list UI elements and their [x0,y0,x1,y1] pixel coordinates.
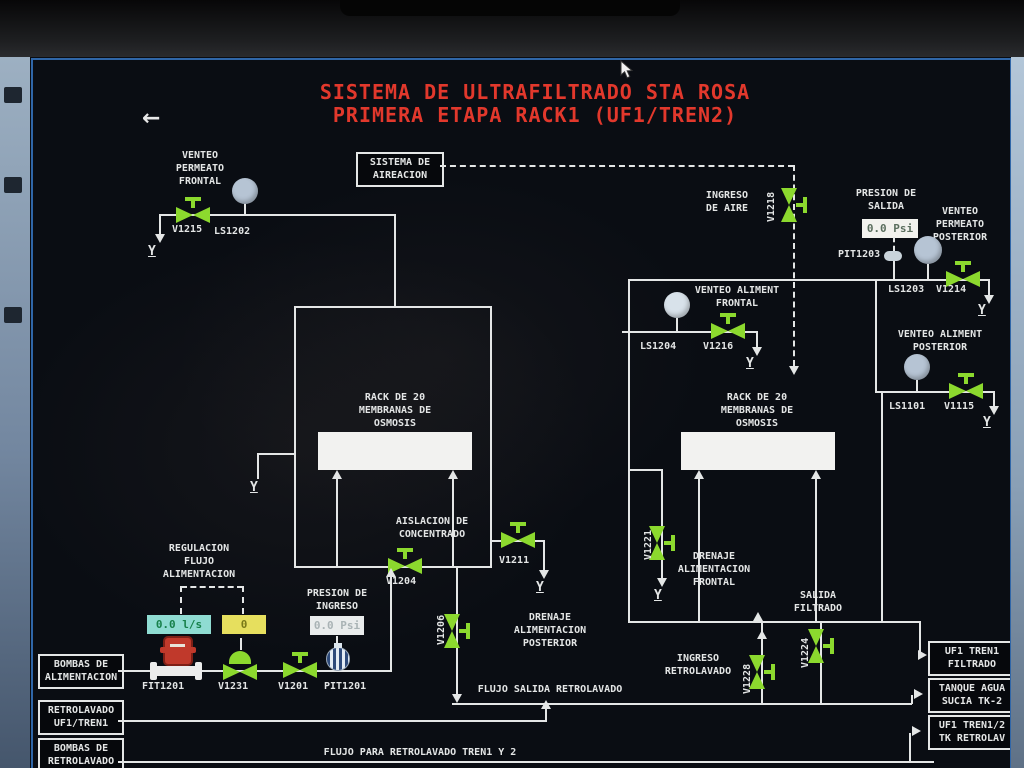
tag-fit1201: FIT1201 [142,681,184,692]
tag-ls1203: LS1203 [888,284,924,295]
valve-v1201[interactable] [283,652,317,678]
photo-edge-left [0,57,30,768]
drain-icon [536,580,544,595]
label-drenaje-alimentacion-posterior: DRENAJE ALIMENTACION POSTERIOR [500,612,600,650]
back-arrow-icon[interactable]: ← [142,106,160,131]
flow-arrow-up [757,630,767,639]
valve-v1216[interactable] [711,313,745,339]
pipe-segment [336,474,338,567]
rack1-membranes[interactable] [318,432,472,470]
label-aislacion-concentrado: AISLACION DE CONCENTRADO [372,516,492,542]
pipe-segment [543,540,545,574]
tag-v1115: V1115 [944,401,974,412]
box-uf1-tren12-retrolav[interactable]: UF1 TREN1/2 TK RETROLAV [928,715,1016,750]
value-apertura-valvula[interactable]: 0 [222,615,266,634]
tag-pit1201: PIT1201 [324,681,366,692]
label-presion-de-salida: PRESION DE SALIDA [846,188,926,214]
flow-arrow-down [789,366,799,375]
rack2-membranes[interactable] [681,432,835,470]
box-sistema-aireacion[interactable]: SISTEMA DE AIREACION [356,152,444,187]
flow-arrow-up [694,470,704,479]
label-flujo-para-retrolavado: FLUJO PARA RETROLAVADO TREN1 Y 2 [280,747,560,760]
flow-arrow-down [539,570,549,579]
signal-line-dashed [893,237,895,251]
tag-v1211: V1211 [499,555,529,566]
box-bombas-retrolavado[interactable]: BOMBAS DE RETROLAVADO [38,738,124,768]
pipe-segment [118,720,546,722]
tag-ls1202: LS1202 [214,226,250,237]
pipe-segment [881,391,883,623]
instrument-stem [244,203,246,215]
flow-arrow-down [989,406,999,415]
tag-v1201: V1201 [278,681,308,692]
drain-icon [654,588,662,603]
drain-icon [250,480,258,495]
tag-v1214: V1214 [936,284,966,295]
value-flujo-alimentacion[interactable]: 0.0 l/s [147,615,211,634]
page-title: SISTEMA DE ULTRAFILTRADO STA ROSA [40,80,1024,104]
pipe-segment [294,306,296,568]
pipe-segment [159,214,161,236]
drain-icon [746,356,754,371]
label-venteo-aliment-frontal: VENTEO ALIMENT FRONTAL [677,285,797,311]
pipe-segment [257,453,259,479]
box-bombas-alimentacion[interactable]: BOMBAS DE ALIMENTACION [38,654,124,689]
flow-arrow-up [811,470,821,479]
label-ingreso-retrolavado: INGRESO RETROLAVADO [648,653,748,679]
valve-v1211[interactable] [501,522,535,548]
pipe-segment [909,733,911,762]
pressure-transmitter-pit1201-icon[interactable] [326,647,350,671]
signal-line-dashed [242,586,244,614]
flow-arrow-down [752,347,762,356]
tag-v1216: V1216 [703,341,733,352]
label-rack2: RACK DE 20 MEMBRANAS DE OSMOSIS [697,392,817,430]
pipe-segment [875,279,877,393]
level-switch-ls1101-icon[interactable] [904,354,930,380]
pipe-segment [628,469,662,471]
label-drenaje-alimentacion-frontal: DRENAJE ALIMENTACION FRONTAL [664,551,764,589]
flow-arrow-up [332,470,342,479]
pipe-segment [452,703,912,705]
flow-arrow-right [914,689,923,699]
pipe-segment [628,621,920,623]
tag-v1221: V1221 [643,530,654,560]
label-venteo-aliment-posterior: VENTEO ALIMENT POSTERIOR [880,329,1000,355]
pipe-segment [118,761,934,763]
valve-v1218[interactable] [781,188,807,222]
valve-v1224[interactable] [808,629,834,663]
valve-v1231[interactable] [223,649,257,680]
flow-arrow-up [448,470,458,479]
drain-icon [983,415,991,430]
label-salida-filtrado: SALIDA FILTRADO [778,590,858,616]
flow-arrow-up [753,612,763,621]
tag-pit1203: PIT1203 [838,249,880,260]
valve-v1215[interactable] [176,197,210,223]
level-switch-ls1202-icon[interactable] [232,178,258,204]
flow-arrow-right [912,726,921,736]
pipe-segment [258,453,295,455]
air-line-dashed [440,165,794,167]
box-tanque-agua-sucia[interactable]: TANQUE AGUA SUCIA TK-2 [928,678,1016,713]
tag-ls1101: LS1101 [889,401,925,412]
pipe-segment [661,469,663,581]
tag-v1228: V1228 [742,664,753,694]
instrument-stem [927,264,929,280]
tag-v1215: V1215 [172,224,202,235]
label-flujo-salida-retrolavado: FLUJO SALIDA RETROLAVADO [440,684,660,697]
valve-v1206[interactable] [444,614,470,648]
label-presion-de-ingreso: PRESION DE INGRESO [287,588,387,614]
valve-v1115[interactable] [949,373,983,399]
box-retrolavado-uf1-tren1[interactable]: RETROLAVADO UF1/TREN1 [38,700,124,735]
signal-line-dashed [181,586,243,588]
page-subtitle: PRIMERA ETAPA RACK1 (UF1/TREN2) [40,103,1024,127]
tag-v1218: V1218 [766,192,777,222]
pipe-segment [390,572,392,672]
pipe-segment [911,695,913,704]
flow-arrow-down [155,234,165,243]
label-ingreso-de-aire: INGRESO DE AIRE [687,190,767,216]
laptop-photo: SISTEMA DE ULTRAFILTRADO STA ROSA PRIMER… [0,0,1024,768]
pipe-segment [294,306,492,308]
drain-icon [978,303,986,318]
tag-v1224: V1224 [800,638,811,668]
box-uf1-tren1-filtrado[interactable]: UF1 TREN1 FILTRADO [928,641,1016,676]
signal-line-dashed [180,586,182,614]
tag-ls1204: LS1204 [640,341,676,352]
pipe-segment [394,214,396,307]
level-switch-ls1203-icon[interactable] [914,236,942,264]
transmitter-pit1203-icon[interactable] [884,251,902,261]
tag-v1231: V1231 [218,681,248,692]
pipe-segment [628,279,630,623]
pipe-segment [628,279,990,281]
laptop-hinge [340,0,680,16]
flow-transmitter-fit1201-icon[interactable] [163,636,193,666]
flow-arrow-up [386,568,396,577]
flow-element-icon [153,666,199,676]
value-presion-ingreso[interactable]: 0.0 Psi [310,616,364,635]
pipe-segment [698,474,700,622]
tag-v1206: V1206 [436,615,447,645]
drain-icon [148,244,156,259]
label-regulacion-flujo: REGULACION FLUJO ALIMENTACION [144,543,254,581]
mouse-cursor-icon [620,60,635,81]
photo-edge-right [1011,57,1024,768]
level-switch-ls1204-icon[interactable] [664,292,690,318]
value-presion-salida[interactable]: 0.0 Psi [862,219,918,238]
instrument-stem [893,261,895,279]
flow-arrow-right [918,650,927,660]
label-rack1: RACK DE 20 MEMBRANAS DE OSMOSIS [335,392,455,430]
